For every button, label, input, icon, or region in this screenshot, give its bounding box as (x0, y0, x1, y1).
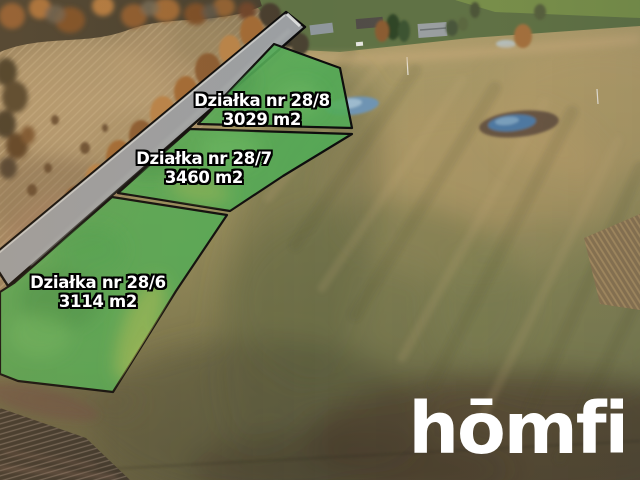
homfi-watermark-logo: hōmfi (408, 393, 627, 464)
parcel-label-28-6: Działka nr 28/6 3114 m2 (30, 273, 166, 311)
listing-photo: Działka nr 28/8 3029 m2 Działka nr 28/7 … (0, 0, 640, 480)
parcel-area: 3114 m2 (30, 292, 166, 311)
parcel-area: 3029 m2 (194, 110, 330, 129)
parcel-area: 3460 m2 (136, 168, 272, 187)
parcel-name: Działka nr 28/7 (136, 149, 272, 168)
parcel-label-28-7: Działka nr 28/7 3460 m2 (136, 149, 272, 187)
parcel-name: Działka nr 28/6 (30, 273, 166, 292)
parcel-label-28-8: Działka nr 28/8 3029 m2 (194, 91, 330, 129)
parcel-name: Działka nr 28/8 (194, 91, 330, 110)
